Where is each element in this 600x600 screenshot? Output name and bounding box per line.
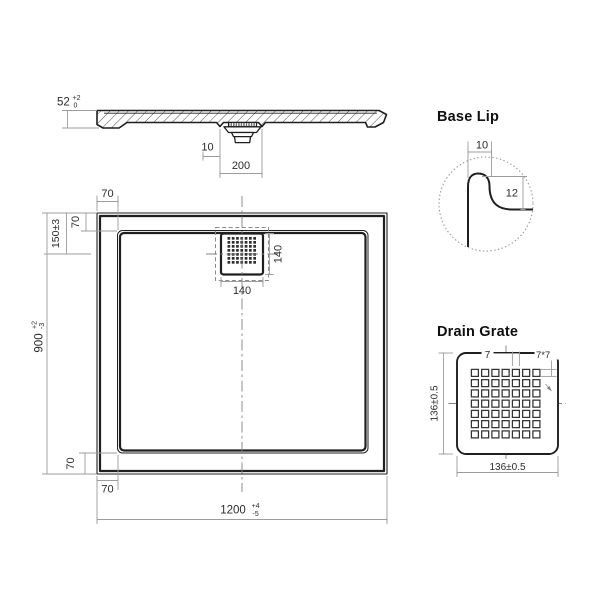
dim-drain-offset: 10 — [201, 142, 213, 154]
grate-holes — [471, 369, 540, 438]
dim-drain-center-from-top: 150±3 — [50, 219, 62, 248]
dim-grate-width: 140 — [233, 285, 251, 297]
dim-bottom-left-border-vertical: 70 — [65, 457, 77, 469]
dim-tray-height: 52 — [57, 97, 70, 109]
drain-grate-title: Drain Grate — [437, 324, 518, 340]
dim-tray-depth-tol-upper: +2 — [32, 321, 39, 329]
dim-bottom-left-border-horizontal: 70 — [101, 484, 113, 496]
dim-tray-width-tol-upper: +4 — [252, 503, 260, 510]
dim-hole-size: 7*7 — [536, 350, 550, 361]
base-lip-detail: Base Lip 10 12 — [437, 109, 533, 251]
dim-tray-depth: 900 — [34, 333, 46, 352]
dim-lip-width: 10 — [476, 140, 488, 152]
base-lip-title: Base Lip — [437, 109, 499, 125]
dim-tray-height-tol-lower: 0 — [74, 103, 78, 110]
dim-grate-height: 140 — [273, 245, 285, 263]
technical-drawing: 52 +2 0 10 200 70 — [0, 0, 600, 600]
dim-tray-width-tol-lower: -5 — [253, 511, 259, 518]
dim-grate-side-left: 136±0.5 — [430, 385, 441, 422]
dim-top-border: 70 — [101, 188, 113, 200]
dim-drain-width: 200 — [232, 160, 250, 172]
detail-circle — [439, 157, 533, 251]
dim-top-left-border: 70 — [70, 216, 82, 228]
plan-view: 70 900 +2 -3 150±3 70 70 — [32, 188, 388, 524]
drain-grate-detail: Drain Grate 7 7*7 136±0.5 136±0.5 — [430, 324, 567, 477]
side-profile-view: 52 +2 0 10 200 — [57, 95, 387, 178]
dim-hole-spacing: 7 — [485, 350, 491, 361]
dim-tray-height-tol-upper: +2 — [73, 95, 81, 102]
dim-tray-depth-tol-lower: -3 — [39, 323, 46, 329]
drain-outlet-profile — [224, 123, 261, 143]
dim-tray-width: 1200 — [220, 505, 246, 517]
dim-lip-height: 12 — [506, 188, 518, 200]
dim-grate-side-bottom: 136±0.5 — [489, 462, 526, 473]
